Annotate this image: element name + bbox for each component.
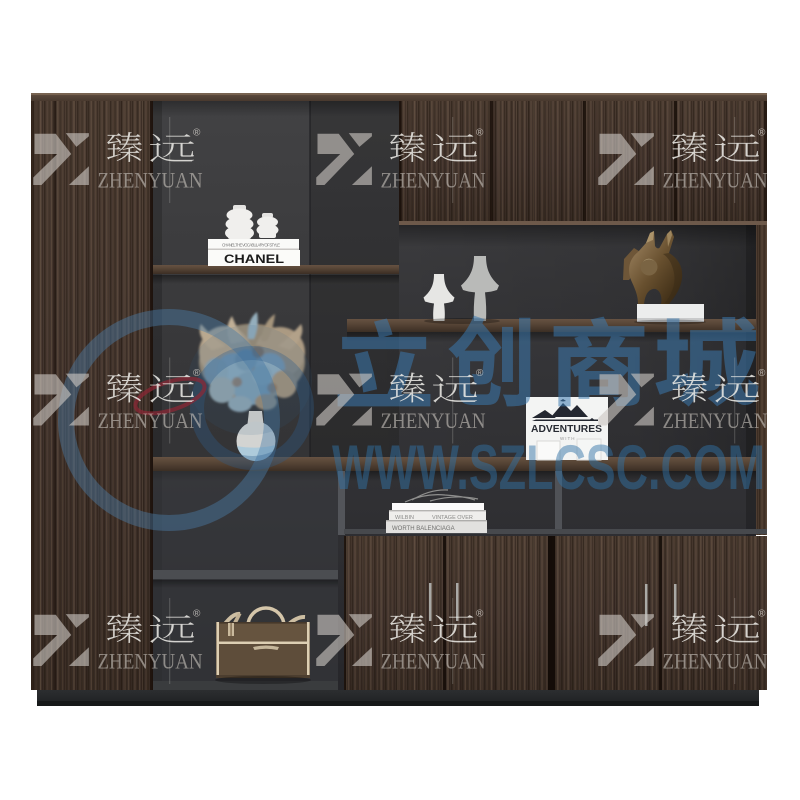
svg-text:WORTH BALENCIAGA: WORTH BALENCIAGA [392,526,455,532]
svg-text:CHANEL THE VOCABULARY OF STYLE: CHANEL THE VOCABULARY OF STYLE [222,243,280,248]
svg-text:CHANEL: CHANEL [224,252,284,266]
svg-text:VINTAGE OVER: VINTAGE OVER [432,515,473,521]
svg-text:WWW.SZLCSC.COM: WWW.SZLCSC.COM [332,433,765,503]
svg-text:WILBIN: WILBIN [395,515,414,521]
